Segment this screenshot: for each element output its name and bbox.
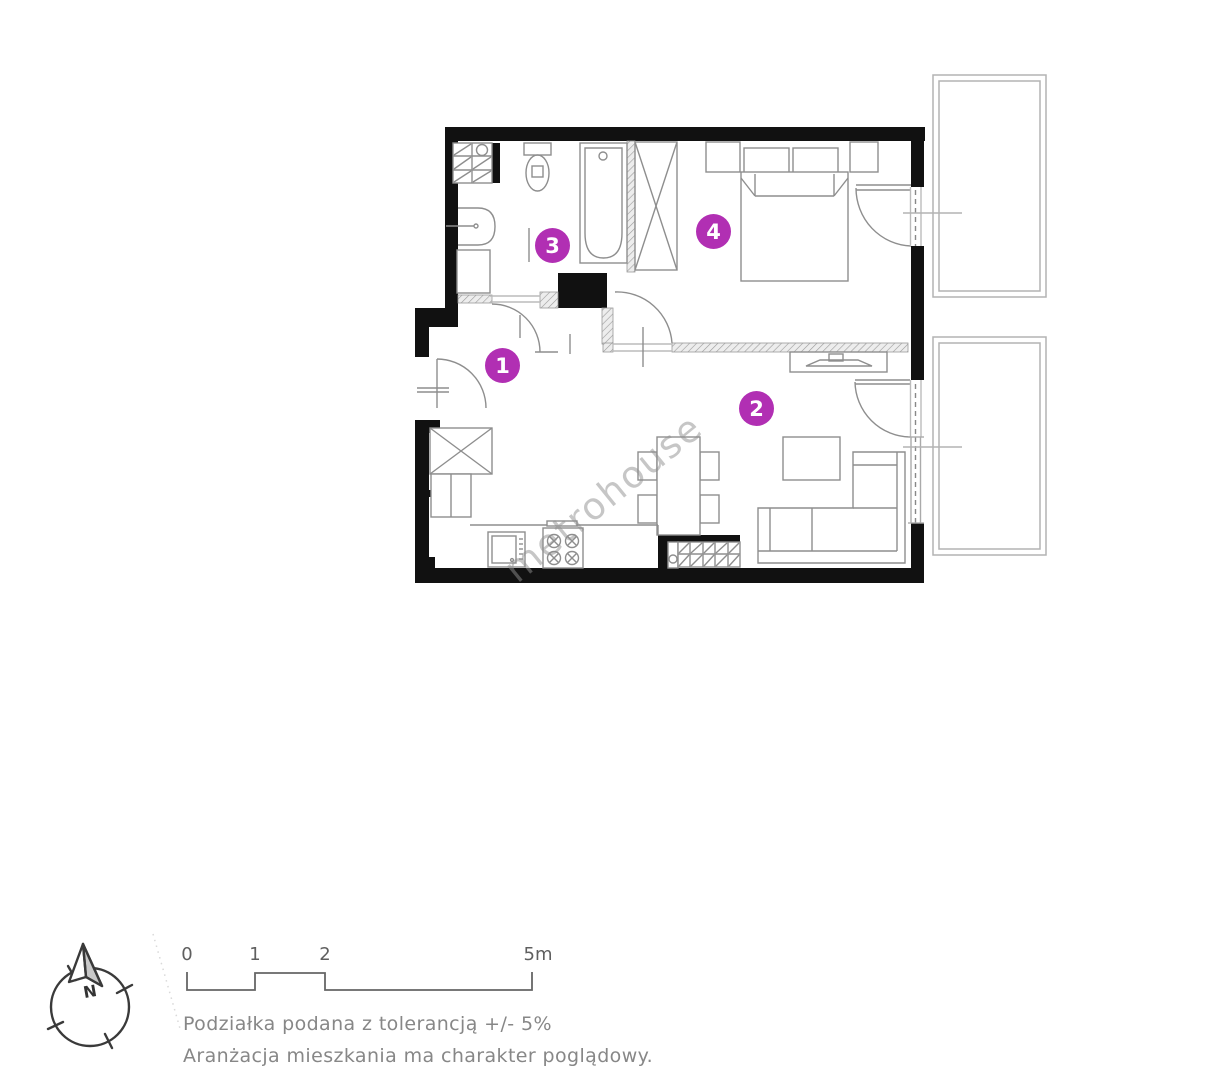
room-marker-living-room: 2 (739, 391, 774, 426)
washing-machine-icon (453, 143, 492, 183)
nightstand-left (706, 142, 740, 172)
hall-wardrobe-icon (430, 428, 492, 474)
scale-label-1: 1 (235, 944, 275, 965)
living-window (908, 437, 924, 523)
scale-label-2: 2 (305, 944, 345, 965)
bedroom-balcony-door (856, 185, 921, 246)
scale-label-0: 0 (167, 944, 207, 965)
room-marker-bathroom: 3 (535, 228, 570, 263)
balcony-bottom (933, 337, 1046, 555)
bed-icon (741, 148, 848, 281)
entrance-door (417, 359, 486, 408)
radiator-icon (668, 542, 740, 568)
living-balcony-door (855, 380, 921, 437)
sofa-icon (758, 452, 905, 563)
nightstand-right (850, 142, 878, 172)
scale-label-5m: 5m (518, 944, 558, 965)
balconies (903, 75, 1046, 555)
floorplan-drawing (0, 0, 1212, 1080)
tv-cabinet-icon (790, 352, 887, 372)
bathroom-cabinet (457, 250, 490, 293)
bedroom-furniture (635, 142, 878, 281)
hall-cabinet-icon (431, 474, 471, 517)
balcony-top (933, 75, 1046, 297)
coffee-table-icon (783, 437, 840, 480)
room-marker-bedroom: 4 (696, 214, 731, 249)
room-marker-hall: 1 (485, 348, 520, 383)
toilet-icon (524, 143, 551, 191)
floorplan-canvas: 1 2 3 4 metrohouse N 0 1 2 5m Podziałka … (0, 0, 1212, 1080)
bathroom-fixtures (446, 143, 627, 293)
wardrobe-icon (635, 142, 677, 270)
duct-shaft (558, 273, 607, 308)
bathroom-door (490, 296, 540, 352)
bedroom-door (613, 292, 672, 367)
footnote-arrangement: Aranżacja mieszkania ma charakter pogląd… (183, 1045, 653, 1067)
bathtub-icon (580, 143, 627, 263)
footnote-tolerance: Podziałka podana z tolerancją +/- 5% (183, 1013, 552, 1035)
